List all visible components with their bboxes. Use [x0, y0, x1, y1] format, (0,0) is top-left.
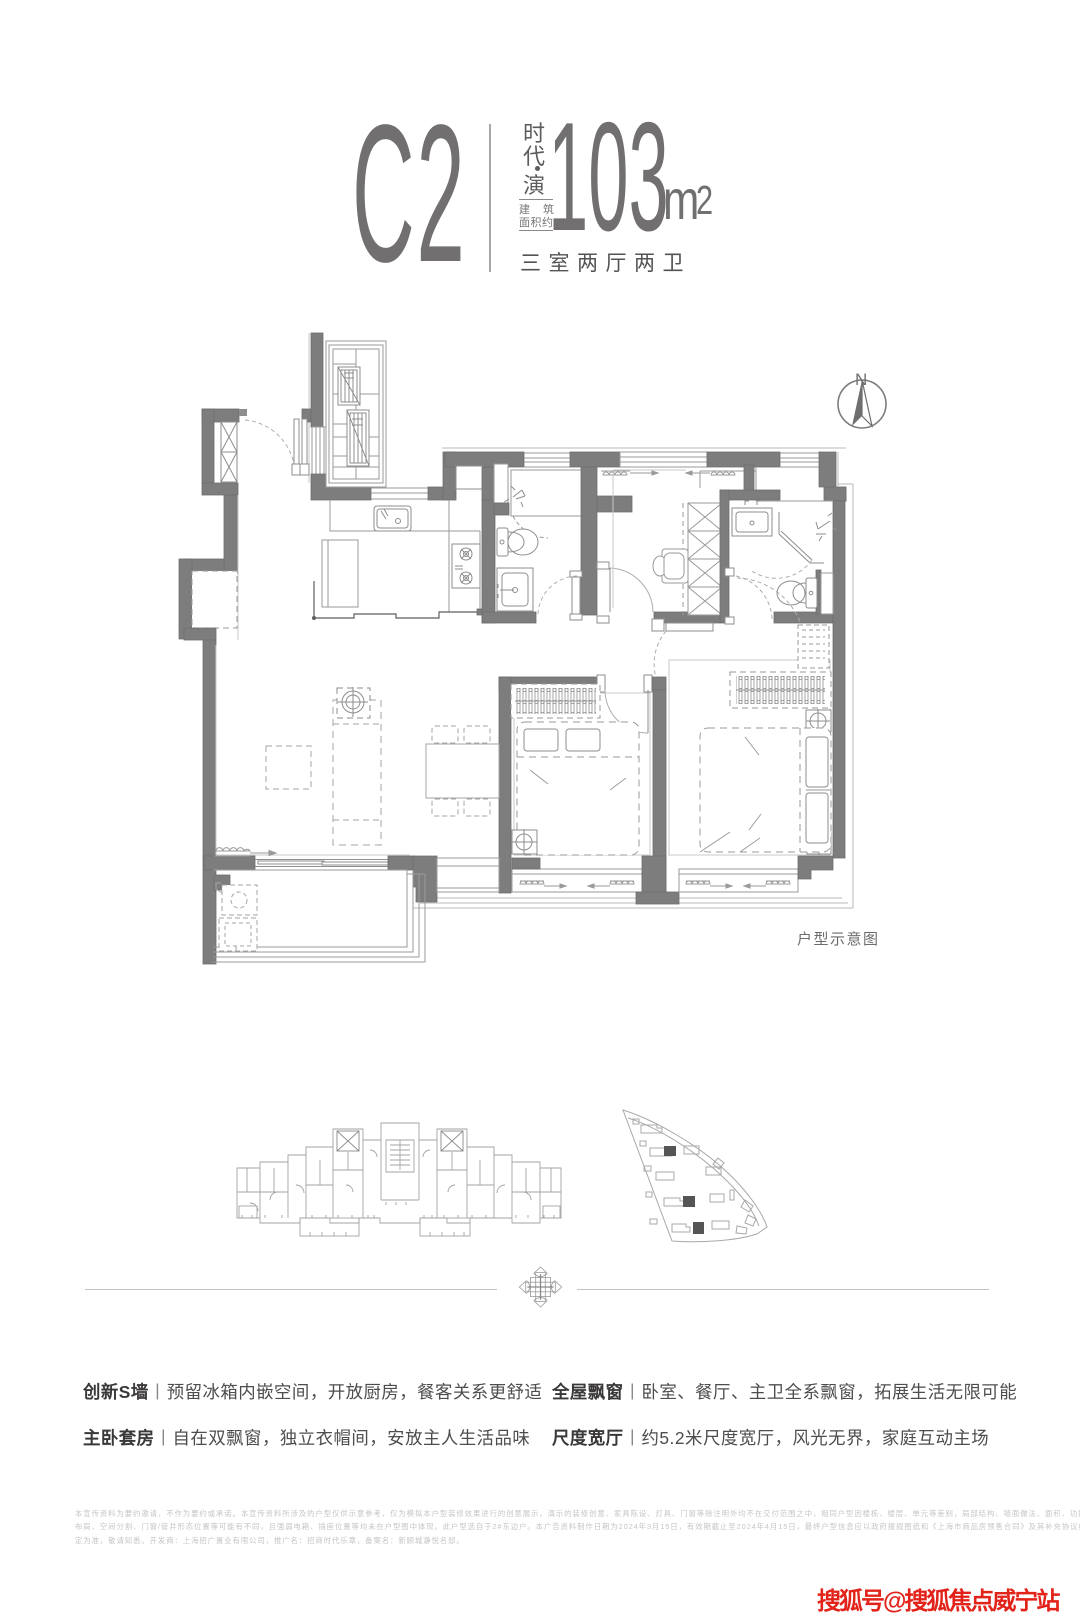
svg-text:N: N — [855, 370, 867, 389]
